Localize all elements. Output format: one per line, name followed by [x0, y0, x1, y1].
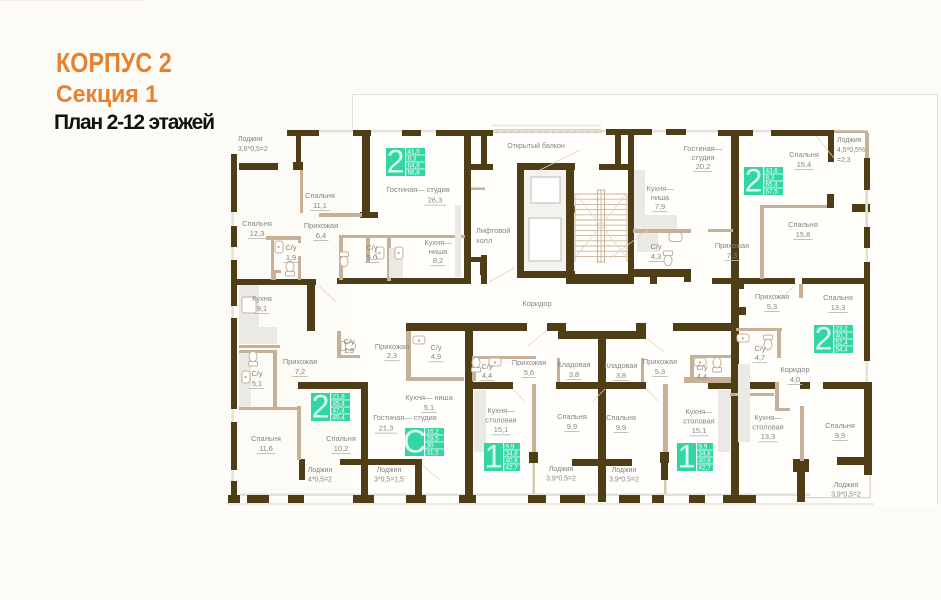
svg-text:9,9: 9,9 [506, 443, 515, 450]
svg-text:5,6: 5,6 [524, 368, 534, 377]
svg-text:Спальня: Спальня [242, 219, 272, 228]
svg-text:13,3: 13,3 [761, 432, 775, 441]
svg-text:Кладовая: Кладовая [557, 360, 590, 369]
svg-text:34,8: 34,8 [699, 450, 712, 457]
svg-text:Прихожая: Прихожая [304, 221, 338, 230]
svg-text:21,8: 21,8 [333, 393, 346, 400]
svg-text:=2,3: =2,3 [837, 157, 851, 164]
svg-text:2,3: 2,3 [387, 351, 397, 360]
svg-text:15,8: 15,8 [796, 230, 810, 239]
svg-text:15,1: 15,1 [494, 425, 508, 434]
svg-text:1: 1 [678, 439, 696, 475]
svg-text:Лоджия: Лоджия [837, 137, 862, 144]
svg-text:столовая: столовая [683, 417, 714, 426]
svg-text:3,9*0,5=2: 3,9*0,5=2 [546, 476, 576, 483]
svg-text:Кухня—: Кухня— [487, 406, 515, 415]
svg-text:Кухня—: Кухня— [424, 238, 452, 247]
svg-text:С/у: С/у [696, 363, 707, 372]
svg-text:8,2: 8,2 [433, 256, 443, 265]
svg-text:4,4: 4,4 [482, 371, 492, 380]
svg-text:15,4: 15,4 [797, 160, 811, 169]
svg-text:С/у: С/у [366, 243, 377, 252]
svg-text:Спальня: Спальня [251, 434, 281, 443]
svg-text:Спальня: Спальня [305, 191, 335, 200]
svg-text:26,3: 26,3 [428, 196, 442, 205]
svg-text:4,4: 4,4 [697, 372, 707, 381]
svg-text:Спальня: Спальня [606, 413, 636, 422]
svg-text:Кухня—: Кухня— [685, 407, 713, 416]
svg-text:1: 1 [485, 439, 503, 475]
svg-text:47,4: 47,4 [333, 407, 346, 414]
svg-text:Спальня: Спальня [789, 150, 819, 159]
svg-text:13,3: 13,3 [831, 303, 845, 312]
svg-text:5,3: 5,3 [767, 302, 777, 311]
svg-text:8,3: 8,3 [766, 174, 775, 181]
svg-text:Прихожая: Прихожая [283, 357, 317, 366]
svg-text:С: С [403, 424, 426, 460]
svg-text:С/у: С/у [430, 343, 441, 352]
svg-text:40,3: 40,3 [836, 332, 849, 339]
svg-text:5,1: 5,1 [424, 403, 434, 412]
svg-text:45,4: 45,4 [333, 400, 346, 407]
svg-text:Кладовая: Кладовая [604, 361, 637, 370]
svg-text:4,5*0,5%: 4,5*0,5% [837, 147, 865, 154]
svg-text:Кухня: Кухня [252, 294, 272, 303]
svg-text:5,0: 5,0 [367, 253, 377, 262]
svg-text:16,2: 16,2 [427, 428, 440, 435]
svg-text:7,2: 7,2 [295, 367, 305, 376]
svg-text:23,2: 23,2 [836, 325, 849, 332]
svg-text:30: 30 [427, 442, 435, 449]
svg-text:42,7: 42,7 [506, 464, 519, 471]
svg-text:столовая: столовая [752, 423, 783, 432]
svg-text:8,3: 8,3 [408, 155, 417, 162]
svg-text:Кухня— ниша: Кухня— ниша [405, 393, 453, 402]
svg-text:Лоджия: Лоджия [238, 136, 263, 143]
svg-text:67,5: 67,5 [766, 188, 779, 195]
svg-text:31,5: 31,5 [427, 449, 440, 456]
svg-text:Кухня—: Кухня— [754, 413, 782, 422]
svg-text:3,9*0,5=2: 3,9*0,5=2 [609, 477, 639, 484]
svg-text:Коридор: Коридор [780, 365, 809, 374]
svg-text:Лифтовой: Лифтовой [476, 226, 510, 235]
svg-text:40,8: 40,8 [699, 457, 712, 464]
svg-text:Спальня: Спальня [326, 434, 356, 443]
svg-text:Лоджия: Лоджия [549, 466, 574, 473]
svg-text:4,7: 4,7 [755, 353, 765, 362]
svg-text:1,9: 1,9 [344, 346, 354, 355]
svg-text:4,3: 4,3 [651, 252, 661, 261]
svg-text:3,8: 3,8 [616, 371, 626, 380]
svg-text:34,8: 34,8 [506, 450, 519, 457]
svg-text:9,9: 9,9 [835, 431, 845, 440]
svg-text:11,6: 11,6 [259, 444, 273, 453]
svg-text:4*0,5=2: 4*0,5=2 [308, 477, 332, 484]
svg-text:52,4: 52,4 [836, 339, 849, 346]
svg-text:12,3: 12,3 [250, 229, 264, 238]
svg-text:43,6: 43,6 [766, 167, 779, 174]
svg-text:Открытый балкон: Открытый балкон [507, 142, 565, 150]
svg-text:студия: студия [691, 153, 714, 162]
svg-text:9,1: 9,1 [257, 304, 267, 313]
svg-text:11,1: 11,1 [313, 201, 327, 210]
svg-text:Прихожая: Прихожая [755, 292, 789, 301]
svg-text:5,3: 5,3 [655, 367, 665, 376]
svg-text:3*0,5=1,5: 3*0,5=1,5 [374, 477, 404, 484]
svg-text:С/у: С/у [650, 242, 661, 251]
svg-text:5,1: 5,1 [252, 379, 262, 388]
svg-text:42,7: 42,7 [699, 464, 712, 471]
svg-text:2: 2 [815, 321, 833, 357]
svg-text:С/у: С/у [481, 362, 492, 371]
svg-text:65,4: 65,4 [766, 181, 779, 188]
svg-text:ниша: ниша [429, 247, 448, 256]
svg-text:4,0: 4,0 [790, 375, 800, 384]
svg-text:49,4: 49,4 [333, 414, 346, 421]
svg-text:Прихожая: Прихожая [715, 241, 749, 250]
svg-text:Гостиная—: Гостиная— [684, 144, 723, 153]
svg-text:2: 2 [745, 163, 763, 199]
svg-text:Прихожая: Прихожая [643, 357, 677, 366]
svg-text:1,9: 1,9 [286, 253, 296, 262]
svg-text:Гостиная— студия: Гостиная— студия [386, 185, 450, 194]
svg-text:64,8: 64,8 [408, 162, 421, 169]
svg-text:Кухня—: Кухня— [646, 184, 674, 193]
svg-text:20,2: 20,2 [696, 162, 710, 171]
svg-text:2: 2 [312, 389, 330, 425]
svg-text:6,4: 6,4 [316, 231, 326, 240]
svg-text:3,9*0,5=2: 3,9*0,5=2 [831, 492, 861, 499]
svg-text:9,9: 9,9 [699, 443, 708, 450]
svg-text:66,6: 66,6 [408, 169, 421, 176]
svg-text:Прихожая: Прихожая [375, 342, 409, 351]
svg-text:Лоджия: Лоджия [612, 467, 637, 474]
svg-text:Лоджия: Лоджия [834, 482, 859, 489]
svg-text:7,3: 7,3 [727, 251, 737, 260]
svg-text:3,8: 3,8 [569, 370, 579, 379]
svg-text:15,1: 15,1 [692, 426, 706, 435]
svg-text:Прихожая: Прихожая [512, 358, 546, 367]
svg-text:С/у: С/у [251, 369, 262, 378]
svg-text:холл: холл [476, 236, 492, 245]
svg-text:4,9: 4,9 [431, 352, 441, 361]
svg-text:Лоджия: Лоджия [377, 467, 402, 474]
svg-text:54,4: 54,4 [836, 346, 849, 353]
svg-text:9,9: 9,9 [567, 422, 577, 431]
svg-text:Коридор: Коридор [522, 299, 551, 308]
svg-text:С/у: С/у [343, 337, 354, 346]
svg-text:28,5: 28,5 [427, 435, 440, 442]
svg-text:10,2: 10,2 [334, 444, 348, 453]
svg-text:ниша: ниша [651, 193, 670, 202]
svg-text:Лоджия: Лоджия [308, 467, 333, 474]
svg-text:9,9: 9,9 [616, 423, 626, 432]
svg-text:С/у: С/у [754, 344, 765, 353]
svg-text:Спальня: Спальня [557, 412, 587, 421]
svg-text:7,9: 7,9 [655, 202, 665, 211]
svg-text:3,6*0,5=2: 3,6*0,5=2 [238, 146, 268, 153]
svg-text:столовая: столовая [485, 416, 516, 425]
svg-text:Гостиная— студия: Гостиная— студия [373, 413, 437, 422]
svg-text:41,5: 41,5 [408, 148, 421, 155]
svg-text:2: 2 [387, 144, 405, 180]
svg-text:21,3: 21,3 [379, 424, 393, 433]
svg-text:Спальня: Спальня [788, 220, 818, 229]
svg-text:Спальня: Спальня [825, 421, 855, 430]
svg-text:С/у: С/у [285, 243, 296, 252]
svg-text:Спальня: Спальня [823, 293, 853, 302]
svg-text:40,8: 40,8 [506, 457, 519, 464]
